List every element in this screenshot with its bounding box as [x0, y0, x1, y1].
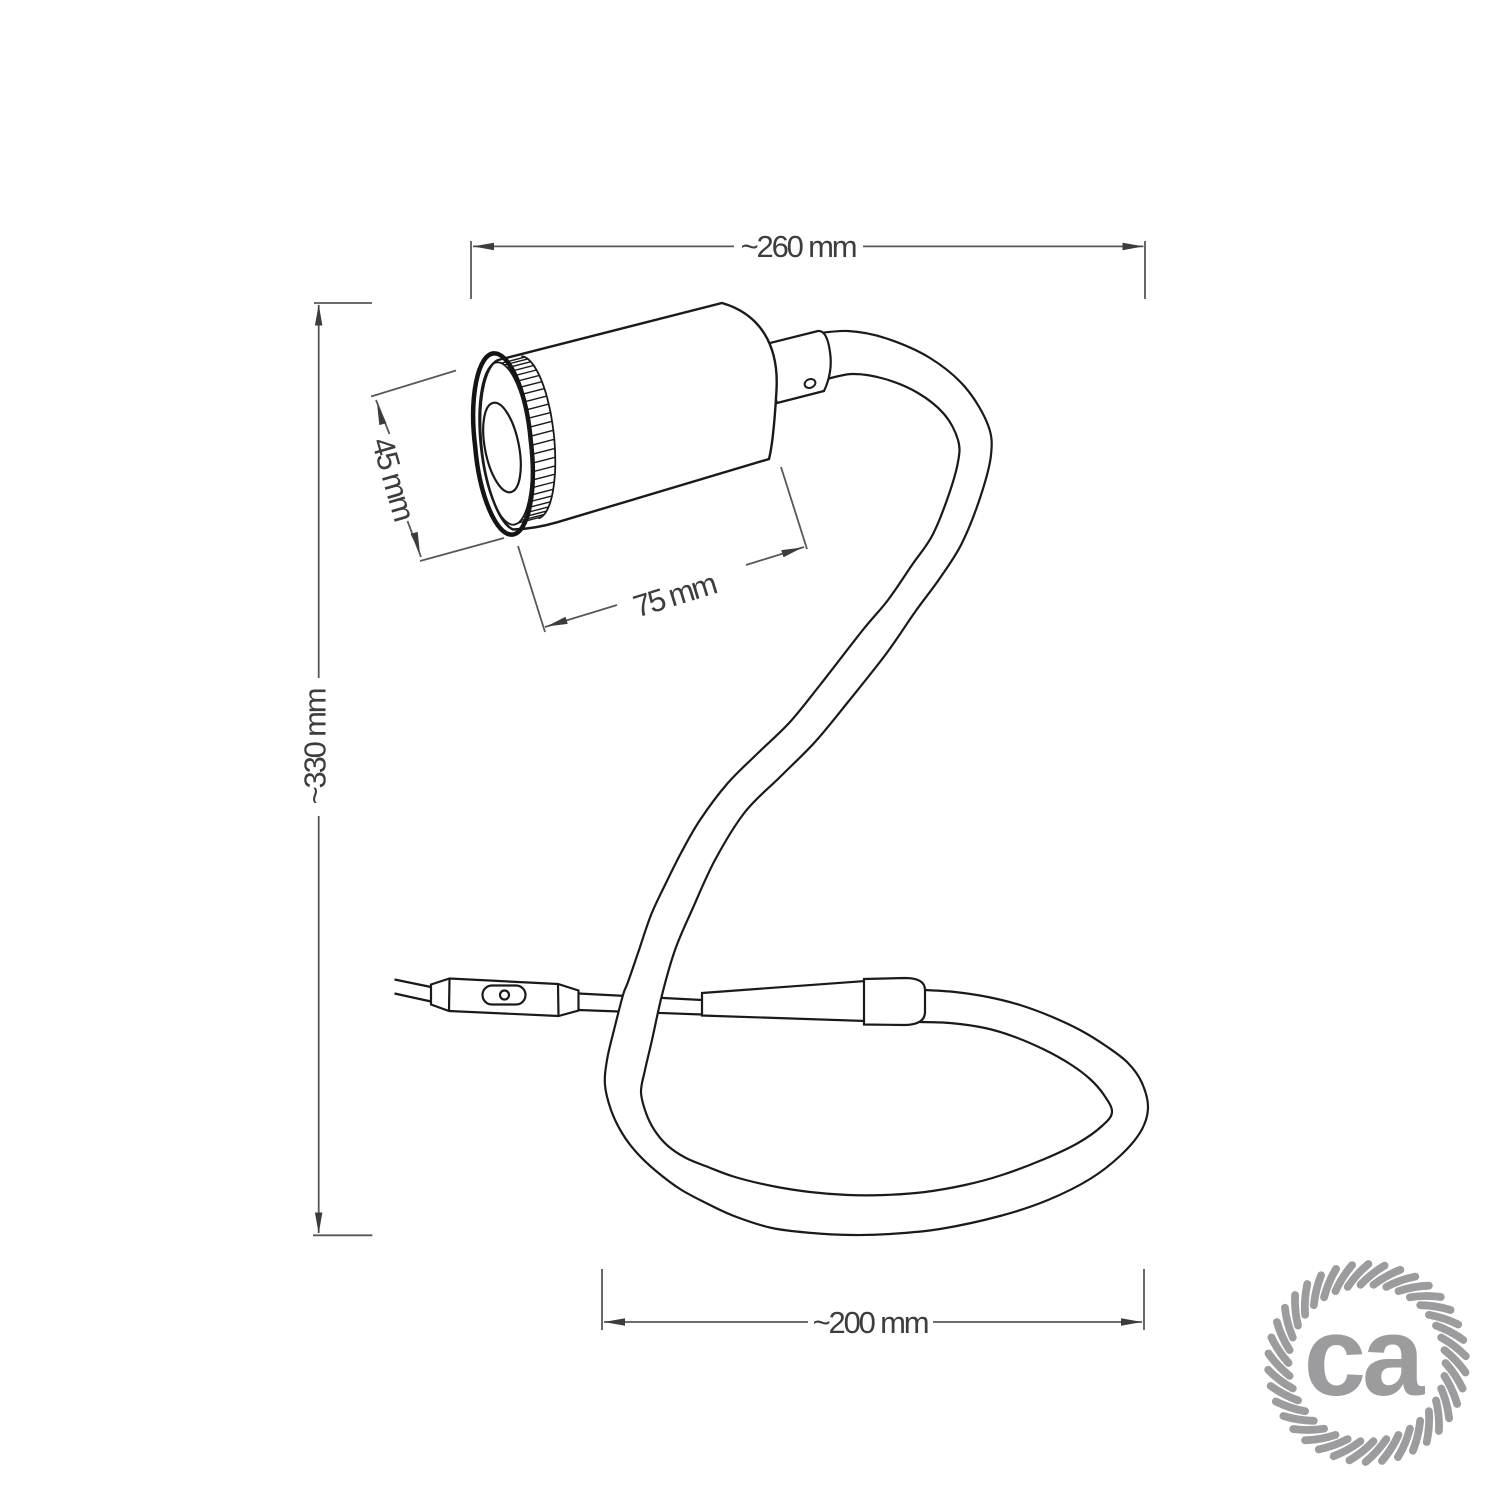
svg-text:~260 mm: ~260 mm — [741, 229, 856, 264]
svg-text:ca: ca — [1304, 1294, 1425, 1419]
svg-text:~330 mm: ~330 mm — [298, 689, 333, 804]
svg-text:~200 mm: ~200 mm — [813, 1305, 928, 1340]
